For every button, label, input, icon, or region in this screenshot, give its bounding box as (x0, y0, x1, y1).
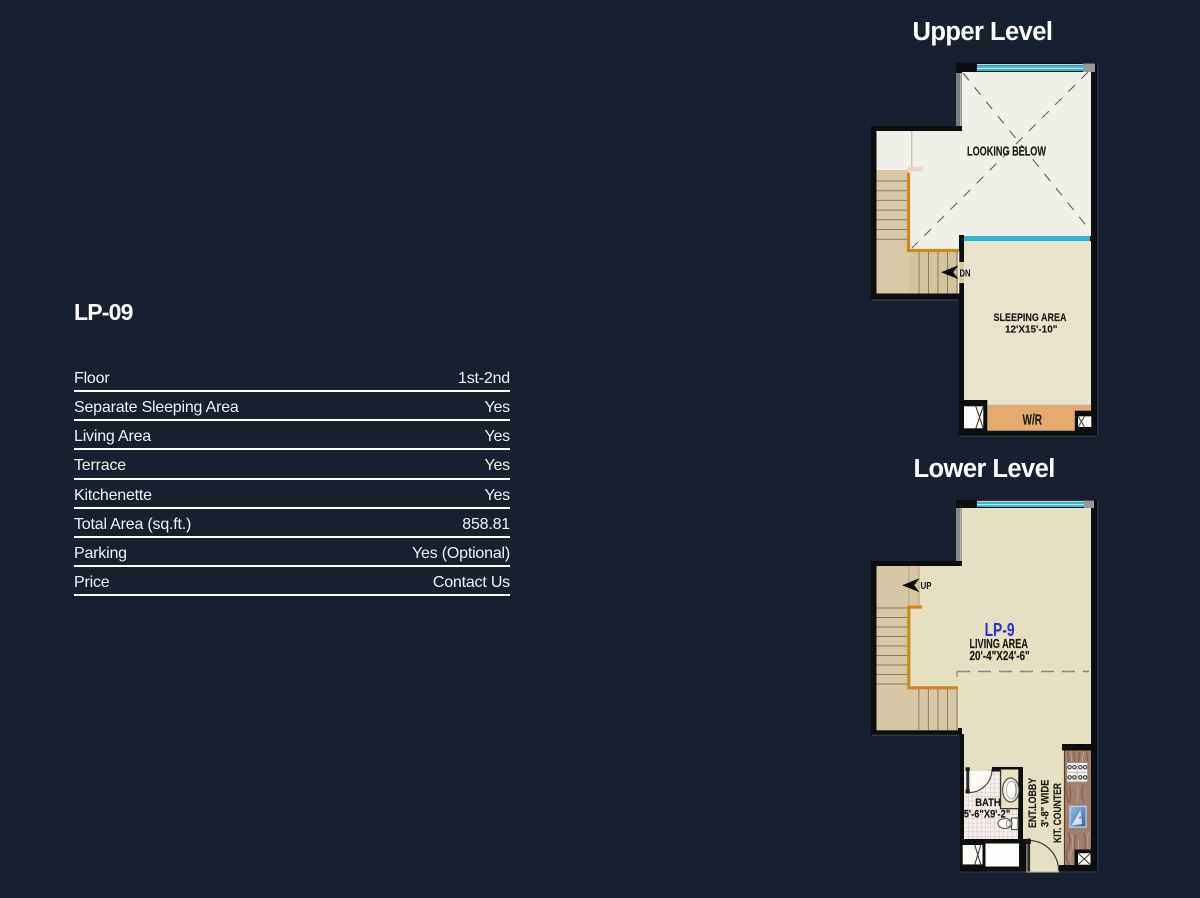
svg-text:KIT. COUNTER: KIT. COUNTER (1052, 783, 1064, 843)
svg-text:20'-4"X24'-6": 20'-4"X24'-6" (970, 649, 1030, 663)
svg-text:SLEEPING AREA: SLEEPING AREA (994, 312, 1067, 324)
svg-text:UP: UP (921, 581, 932, 592)
svg-text:DN: DN (960, 269, 971, 280)
svg-text:12'X15'-10": 12'X15'-10" (1005, 324, 1058, 336)
svg-text:ENT.LOBBY: ENT.LOBBY (1027, 777, 1039, 828)
svg-text:BATH: BATH (975, 797, 1001, 809)
svg-text:3'-8" WIDE: 3'-8" WIDE (1040, 780, 1052, 828)
svg-text:5'-6"X9'-2": 5'-6"X9'-2" (964, 808, 1011, 820)
svg-text:LOOKING BELOW: LOOKING BELOW (967, 144, 1047, 159)
svg-text:W/R: W/R (1023, 412, 1043, 429)
